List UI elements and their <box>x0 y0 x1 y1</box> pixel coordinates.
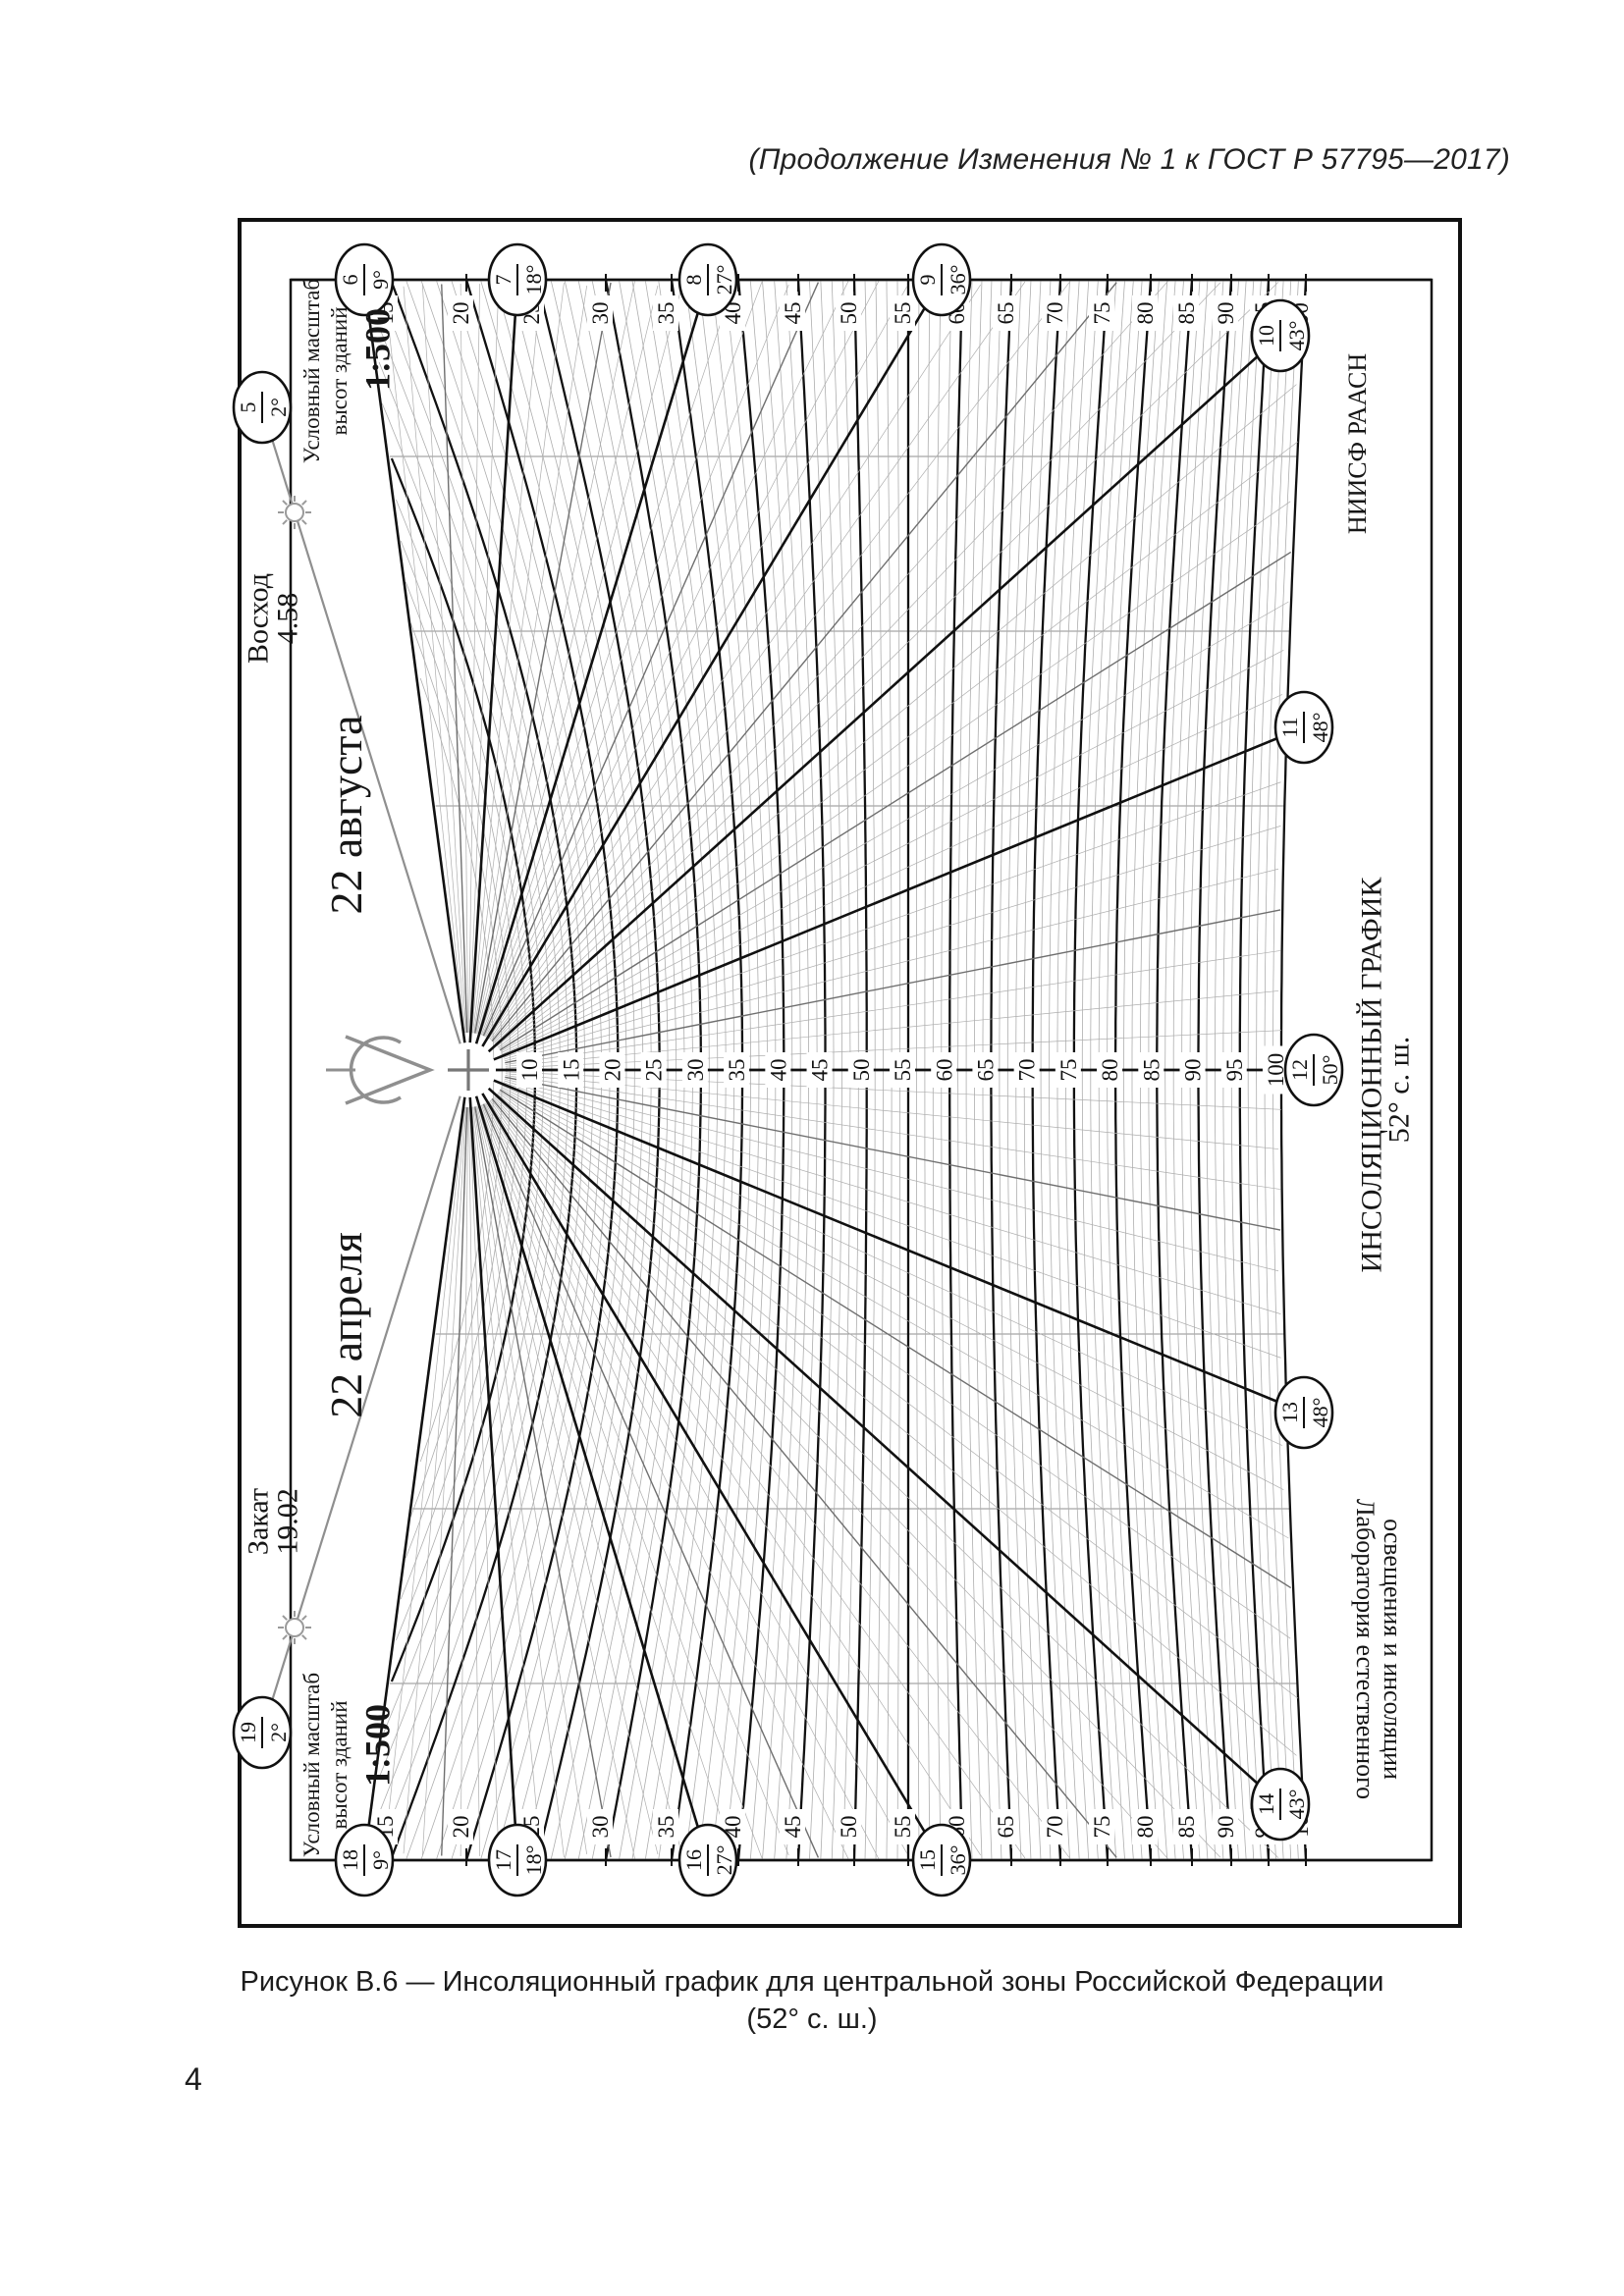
svg-text:9°: 9° <box>368 1850 393 1870</box>
svg-text:43°: 43° <box>1284 321 1309 351</box>
caption-line-1: Рисунок В.6 — Инсоляционный график для ц… <box>0 1963 1624 2001</box>
svg-text:50: 50 <box>837 302 861 325</box>
hour-label-7: 718° <box>489 244 546 315</box>
page-number: 4 <box>185 2061 202 2098</box>
svg-text:9: 9 <box>915 275 940 286</box>
svg-text:36°: 36° <box>946 265 970 295</box>
svg-text:70: 70 <box>1015 1059 1040 1082</box>
hour-label-5: 52° <box>234 372 291 443</box>
svg-text:70: 70 <box>1043 1816 1067 1839</box>
svg-text:17: 17 <box>491 1849 515 1871</box>
svg-text:20: 20 <box>449 302 473 325</box>
insolation-chart: 1515202025253030353540404545505055556060… <box>0 0 1624 2296</box>
svg-text:18°: 18° <box>521 1845 546 1876</box>
svg-text:30: 30 <box>588 302 613 325</box>
svg-text:25: 25 <box>642 1059 667 1082</box>
sunrise-time: 4.58 <box>272 593 304 645</box>
svg-text:65: 65 <box>973 1059 998 1082</box>
svg-text:15: 15 <box>559 1059 583 1082</box>
svg-text:80: 80 <box>1098 1059 1122 1082</box>
scale-note-top-1: Условный масштаб <box>299 279 324 463</box>
svg-text:55: 55 <box>891 1059 915 1082</box>
svg-text:8: 8 <box>681 275 706 286</box>
svg-text:90: 90 <box>1214 302 1238 325</box>
svg-text:70: 70 <box>1043 302 1067 325</box>
sun-icon <box>278 1611 311 1644</box>
svg-text:6: 6 <box>338 275 362 286</box>
svg-text:30: 30 <box>588 1816 613 1839</box>
hour-label-13: 1348° <box>1275 1377 1332 1448</box>
svg-text:45: 45 <box>781 1816 805 1839</box>
svg-text:95: 95 <box>1222 1059 1247 1082</box>
svg-text:80: 80 <box>1133 1816 1158 1839</box>
svg-text:27°: 27° <box>712 265 736 295</box>
svg-text:7: 7 <box>491 275 515 286</box>
laboratory-line-2: освещения и инсоляции <box>1379 1519 1407 1780</box>
sun-icon <box>278 496 311 529</box>
scale-ratio-bottom: 1:500 <box>358 1704 398 1787</box>
svg-text:19: 19 <box>236 1722 260 1743</box>
hour-label-16: 1627° <box>679 1825 736 1896</box>
date-april-label: 22 апреля <box>321 1232 371 1417</box>
hour-label-11: 1148° <box>1275 692 1332 763</box>
svg-text:5: 5 <box>236 402 260 413</box>
svg-text:40: 40 <box>766 1059 790 1082</box>
scale-note-bottom-1: Условный масштаб <box>299 1673 324 1857</box>
svg-text:65: 65 <box>994 1816 1018 1839</box>
date-august-label: 22 августа <box>321 715 371 914</box>
hour-label-18: 189° <box>336 1825 393 1896</box>
laboratory-line-1: Лаборатория естественного <box>1351 1499 1380 1799</box>
sunrise-label: Восход <box>243 573 275 664</box>
sunset-label: Закат <box>243 1488 275 1555</box>
svg-text:65: 65 <box>994 302 1018 325</box>
svg-text:75: 75 <box>1090 302 1114 325</box>
organization-label: НИИСФ РААСН <box>1343 353 1372 534</box>
svg-text:90: 90 <box>1214 1816 1238 1839</box>
hour-label-14: 1443° <box>1252 1769 1309 1840</box>
svg-text:2°: 2° <box>266 1723 291 1742</box>
scale-note-top-2: высот зданий <box>327 306 352 435</box>
svg-text:80: 80 <box>1133 302 1158 325</box>
svg-text:16: 16 <box>681 1849 706 1871</box>
svg-text:43°: 43° <box>1284 1789 1309 1820</box>
svg-text:14: 14 <box>1254 1793 1278 1815</box>
svg-text:9°: 9° <box>368 270 393 290</box>
hour-label-17: 1718° <box>489 1825 546 1896</box>
svg-text:15: 15 <box>915 1849 940 1871</box>
latitude-label: 52° с. ш. <box>1383 1037 1416 1143</box>
svg-text:10: 10 <box>517 1059 542 1082</box>
figure-caption: Рисунок В.6 — Инсоляционный график для ц… <box>0 1963 1624 2038</box>
svg-text:50: 50 <box>837 1816 861 1839</box>
north-compass-icon <box>326 1037 430 1103</box>
document-page: { "page": { "header": "(Продолжение Изме… <box>0 0 1624 2296</box>
svg-text:75: 75 <box>1056 1059 1081 1082</box>
hour-label-15: 1536° <box>913 1825 970 1896</box>
svg-text:18: 18 <box>338 1849 362 1871</box>
hour-label-9: 936° <box>913 244 970 315</box>
svg-text:90: 90 <box>1181 1059 1206 1082</box>
observation-point <box>441 1042 496 1097</box>
hour-label-10: 1043° <box>1252 300 1309 371</box>
svg-text:48°: 48° <box>1308 1398 1332 1428</box>
svg-text:18°: 18° <box>521 265 546 295</box>
scale-note-bottom-2: высот зданий <box>327 1700 352 1829</box>
svg-text:50°: 50° <box>1318 1055 1342 1086</box>
svg-text:35: 35 <box>654 302 678 325</box>
hour-label-8: 827° <box>679 244 736 315</box>
svg-text:85: 85 <box>1139 1059 1164 1082</box>
hour-label-6: 69° <box>336 244 393 315</box>
svg-text:55: 55 <box>891 1816 915 1839</box>
sunset-time: 19.02 <box>272 1488 304 1555</box>
svg-text:36°: 36° <box>946 1845 970 1876</box>
svg-text:75: 75 <box>1090 1816 1114 1839</box>
svg-text:12: 12 <box>1287 1059 1312 1081</box>
svg-text:35: 35 <box>725 1059 749 1082</box>
svg-text:85: 85 <box>1174 302 1199 325</box>
hour-label-19: 192° <box>234 1697 291 1768</box>
caption-line-2: (52° с. ш.) <box>0 2001 1624 2038</box>
svg-text:45: 45 <box>808 1059 833 1082</box>
svg-text:35: 35 <box>654 1816 678 1839</box>
svg-text:50: 50 <box>849 1059 874 1082</box>
svg-text:55: 55 <box>891 302 915 325</box>
scale-ratio-top: 1:500 <box>358 308 398 391</box>
svg-text:10: 10 <box>1254 325 1278 347</box>
hour-label-12: 1250° <box>1285 1035 1342 1105</box>
svg-text:48°: 48° <box>1308 713 1332 743</box>
svg-text:13: 13 <box>1277 1402 1302 1423</box>
svg-text:45: 45 <box>781 302 805 325</box>
svg-text:11: 11 <box>1277 717 1302 737</box>
svg-text:85: 85 <box>1174 1816 1199 1839</box>
svg-text:30: 30 <box>683 1059 708 1082</box>
svg-text:60: 60 <box>932 1059 956 1082</box>
svg-text:20: 20 <box>600 1059 624 1082</box>
svg-text:2°: 2° <box>266 398 291 417</box>
svg-text:20: 20 <box>449 1816 473 1839</box>
svg-text:27°: 27° <box>712 1845 736 1876</box>
